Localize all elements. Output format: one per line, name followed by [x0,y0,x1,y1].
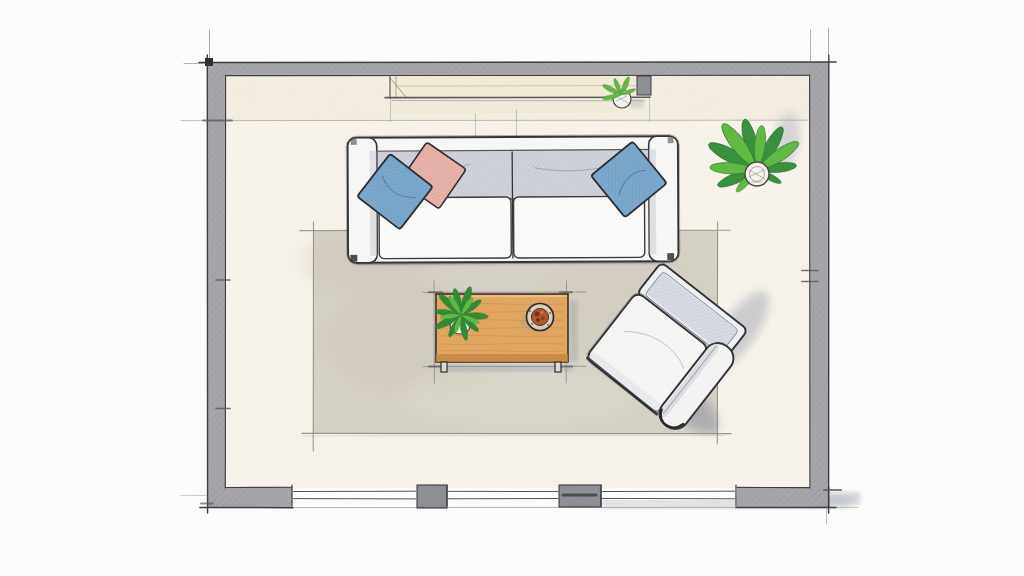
top-window-niche [385,76,651,113]
table-edge-band [436,354,568,362]
sofa-center-divider [512,152,513,258]
corner-dot [205,58,213,66]
floor-plant-pot [745,162,769,186]
sofa [346,135,680,265]
bottom-windows [293,490,735,501]
coffee-table [423,281,586,383]
corner-shadow [826,492,860,505]
floor-plan-sketch [0,0,1024,576]
bowl-contents [532,309,549,326]
table-bottom-shadow [440,365,572,372]
table-side-shadow [569,300,578,362]
window-niche-pier [637,76,651,95]
